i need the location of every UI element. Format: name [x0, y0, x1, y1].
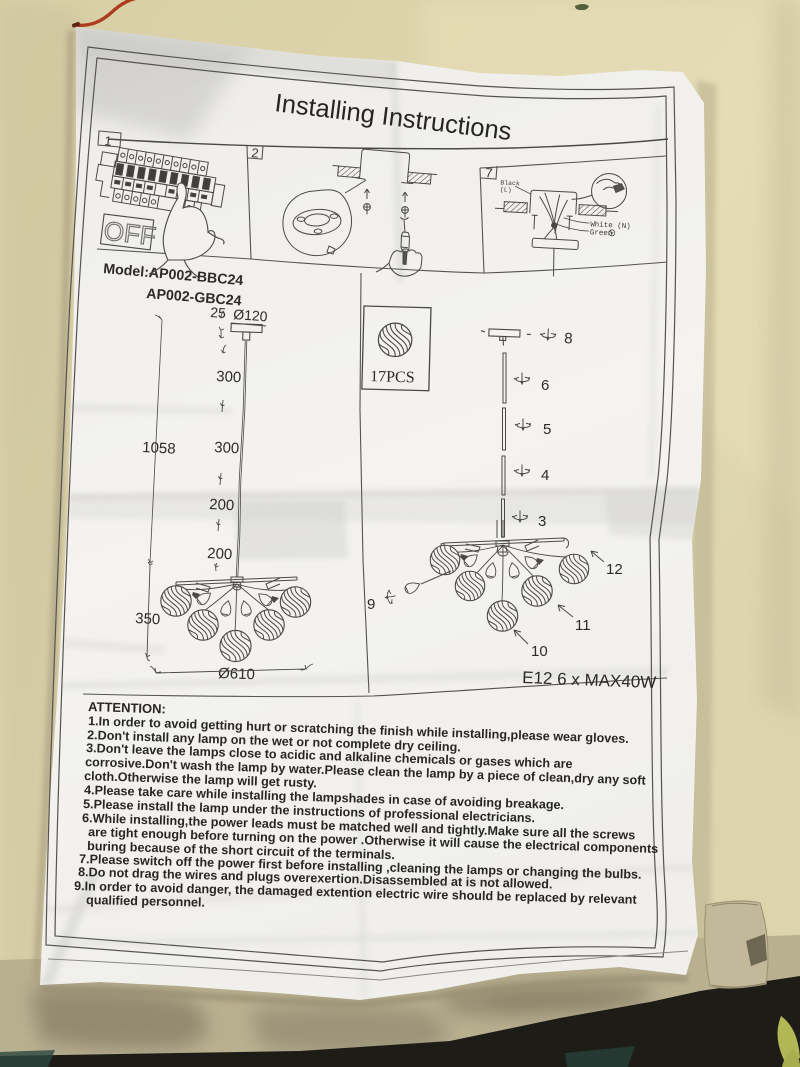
- svg-text:OFF: OFF: [102, 215, 157, 251]
- svg-text:3: 3: [538, 513, 546, 530]
- svg-text:4: 4: [541, 467, 549, 484]
- svg-text:(L): (L): [500, 186, 512, 194]
- svg-text:200: 200: [209, 496, 235, 514]
- svg-text:10: 10: [531, 643, 548, 660]
- svg-text:Ø610: Ø610: [218, 665, 255, 683]
- svg-text:11: 11: [575, 617, 591, 634]
- svg-text:1058: 1058: [142, 439, 176, 458]
- svg-text:300: 300: [214, 439, 240, 457]
- svg-text:5: 5: [543, 421, 551, 438]
- svg-text:7: 7: [485, 165, 494, 181]
- svg-text:qualified personnel.: qualified personnel.: [86, 893, 205, 910]
- svg-text:17PCS: 17PCS: [370, 368, 415, 386]
- svg-text:300: 300: [216, 368, 242, 386]
- svg-text:Ø120: Ø120: [233, 306, 268, 324]
- svg-text:6: 6: [541, 377, 549, 394]
- svg-text:200: 200: [207, 545, 233, 563]
- svg-text:8: 8: [564, 330, 573, 347]
- svg-text:9: 9: [367, 596, 375, 613]
- svg-text:12: 12: [606, 561, 623, 578]
- svg-text:25: 25: [210, 304, 227, 321]
